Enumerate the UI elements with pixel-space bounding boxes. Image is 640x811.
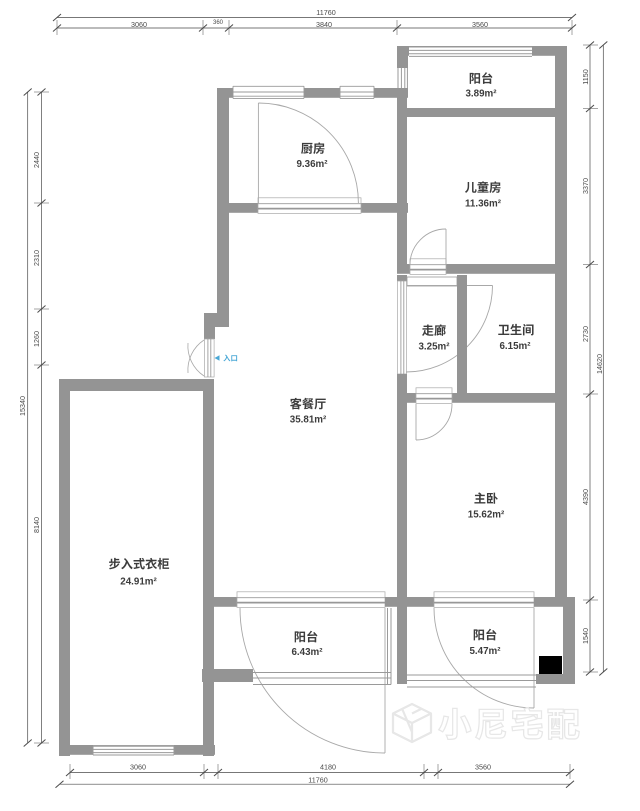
svg-text:14620: 14620 — [595, 354, 604, 374]
svg-text:11760: 11760 — [316, 8, 335, 17]
svg-text:11.36m²: 11.36m² — [465, 198, 502, 209]
svg-text:24.91m²: 24.91m² — [120, 576, 157, 587]
svg-text:1150: 1150 — [581, 69, 590, 84]
svg-text:35.81m²: 35.81m² — [290, 414, 327, 425]
svg-text:2310: 2310 — [32, 250, 41, 266]
svg-text:2730: 2730 — [581, 326, 590, 342]
svg-text:4390: 4390 — [581, 489, 590, 505]
svg-text:3.25m²: 3.25m² — [418, 341, 450, 352]
svg-text:3560: 3560 — [475, 763, 491, 772]
svg-text:3.89m²: 3.89m² — [465, 88, 497, 99]
svg-text:8140: 8140 — [32, 517, 41, 533]
svg-text:15340: 15340 — [18, 396, 27, 416]
svg-text:5.47m²: 5.47m² — [469, 646, 501, 657]
svg-text:360: 360 — [213, 20, 224, 26]
svg-text:9.36m²: 9.36m² — [296, 159, 328, 170]
svg-text:2440: 2440 — [32, 152, 41, 168]
svg-text:4180: 4180 — [320, 763, 336, 772]
svg-text:6.15m²: 6.15m² — [499, 341, 531, 352]
svg-text:3060: 3060 — [130, 763, 146, 772]
svg-text:11760: 11760 — [308, 776, 327, 785]
svg-text:1540: 1540 — [581, 628, 590, 644]
svg-text:3560: 3560 — [472, 20, 488, 29]
svg-text:3370: 3370 — [581, 178, 590, 194]
svg-text:1260: 1260 — [32, 331, 41, 347]
svg-text:3060: 3060 — [131, 20, 147, 29]
svg-text:15.62m²: 15.62m² — [468, 509, 505, 520]
svg-text:3840: 3840 — [316, 20, 332, 29]
svg-text:6.43m²: 6.43m² — [291, 647, 323, 658]
